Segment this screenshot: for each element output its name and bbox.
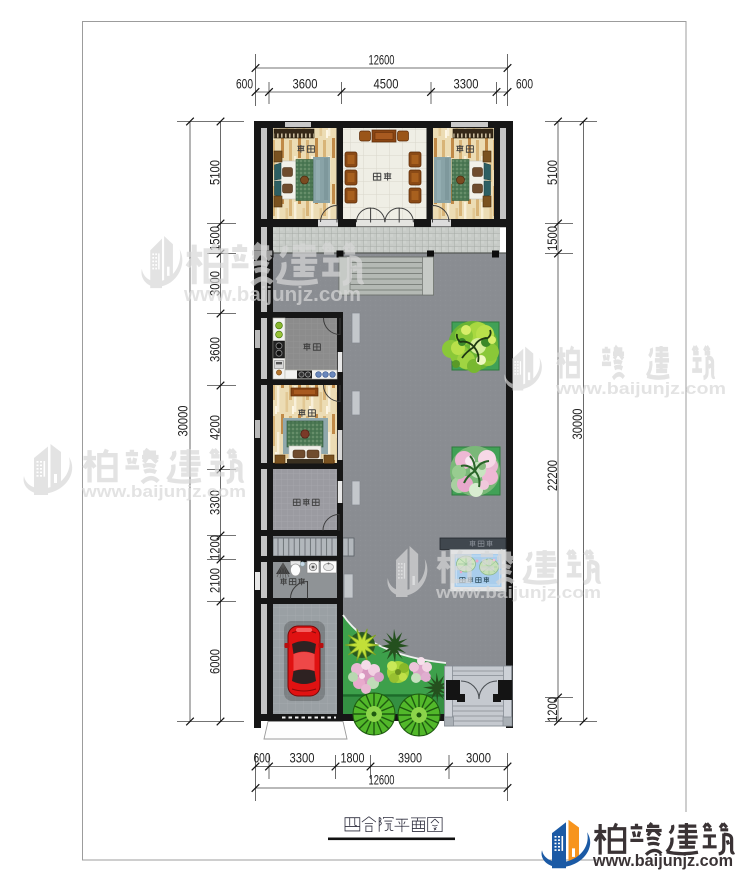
svg-text:2100: 2100 — [207, 568, 223, 593]
svg-text:3300: 3300 — [290, 750, 315, 766]
svg-text:600: 600 — [254, 750, 271, 766]
svg-text:600: 600 — [236, 76, 253, 92]
svg-text:www.baijunjz.com: www.baijunjz.com — [435, 583, 601, 602]
svg-text:30000: 30000 — [175, 405, 191, 436]
svg-text:3900: 3900 — [398, 750, 422, 766]
svg-text:30000: 30000 — [569, 408, 585, 439]
svg-text:3600: 3600 — [207, 337, 223, 362]
svg-text:www.baijunjz.com: www.baijunjz.com — [81, 482, 246, 501]
svg-text:3600: 3600 — [293, 76, 318, 92]
svg-text:www.baijunjz.com: www.baijunjz.com — [592, 852, 733, 870]
svg-text:3000: 3000 — [466, 750, 491, 766]
svg-text:5100: 5100 — [207, 160, 223, 185]
svg-text:1200: 1200 — [207, 535, 223, 560]
svg-text:3300: 3300 — [454, 76, 479, 92]
svg-text:1500: 1500 — [544, 226, 560, 251]
svg-text:www.baijunjz.com: www.baijunjz.com — [183, 284, 361, 306]
svg-text:5100: 5100 — [544, 160, 560, 185]
svg-text:1200: 1200 — [544, 697, 560, 722]
svg-text:12600: 12600 — [369, 772, 395, 788]
svg-text:600: 600 — [516, 76, 533, 92]
svg-text:4500: 4500 — [374, 76, 399, 92]
svg-text:6000: 6000 — [207, 649, 223, 674]
svg-text:22200: 22200 — [544, 460, 560, 491]
svg-text:12600: 12600 — [369, 52, 395, 68]
svg-text:4200: 4200 — [207, 415, 223, 440]
svg-text:www.baijunjz.com: www.baijunjz.com — [555, 379, 726, 398]
svg-text:1800: 1800 — [341, 750, 365, 766]
